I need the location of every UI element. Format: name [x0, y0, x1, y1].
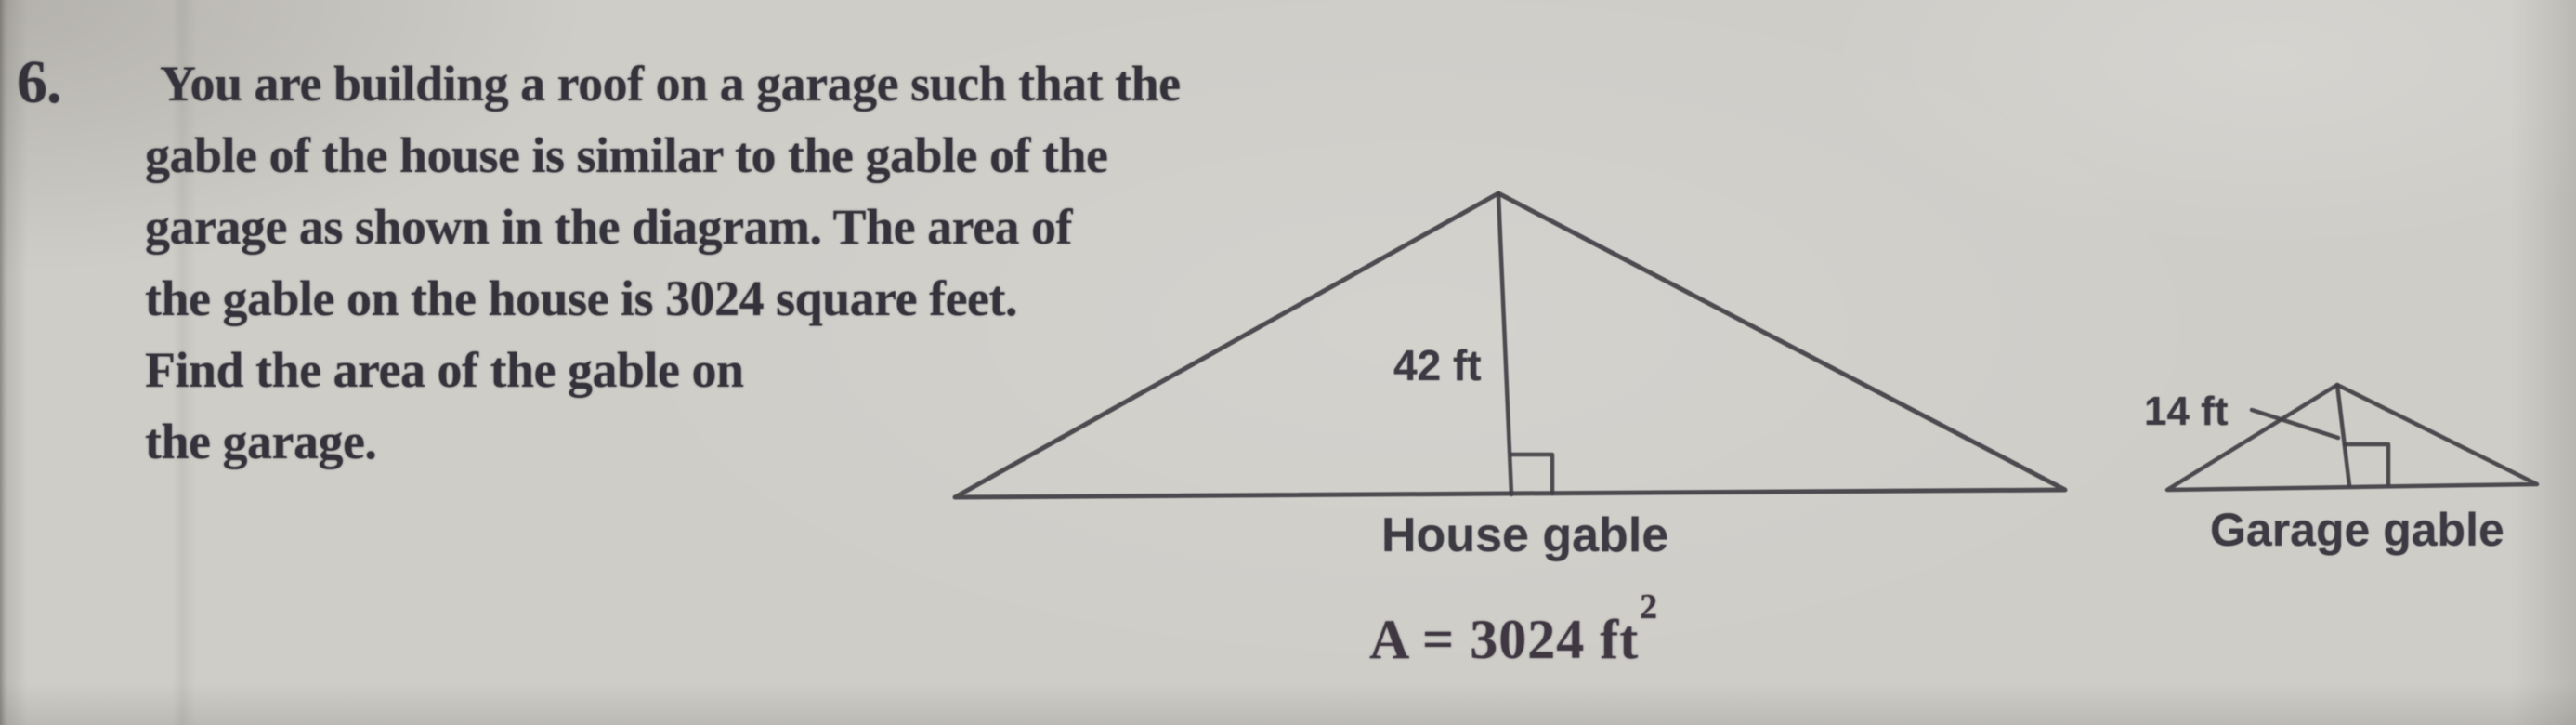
house-gable-caption: House gable	[1381, 507, 1668, 563]
house-area-value: A = 3024 ft	[1369, 609, 1639, 670]
house-area-label: A = 3024 ft2	[1369, 593, 1657, 674]
garage-altitude-line	[2337, 385, 2349, 485]
house-area-exponent: 2	[1640, 587, 1658, 626]
house-altitude-line	[1498, 193, 1511, 494]
garage-right-angle-marker	[2345, 444, 2388, 484]
garage-height-leader-line	[2252, 410, 2338, 438]
page-content: 6. You are building a roof on a garage s…	[0, 0, 2576, 725]
garage-height-label: 14 ft	[2144, 389, 2228, 435]
house-right-angle-marker	[1511, 455, 1552, 494]
garage-gable-caption: Garage gable	[2210, 503, 2504, 557]
gables-diagram	[0, 0, 2576, 725]
house-height-label: 42 ft	[1393, 340, 1482, 390]
worksheet-page: 6. You are building a roof on a garage s…	[0, 0, 2576, 725]
